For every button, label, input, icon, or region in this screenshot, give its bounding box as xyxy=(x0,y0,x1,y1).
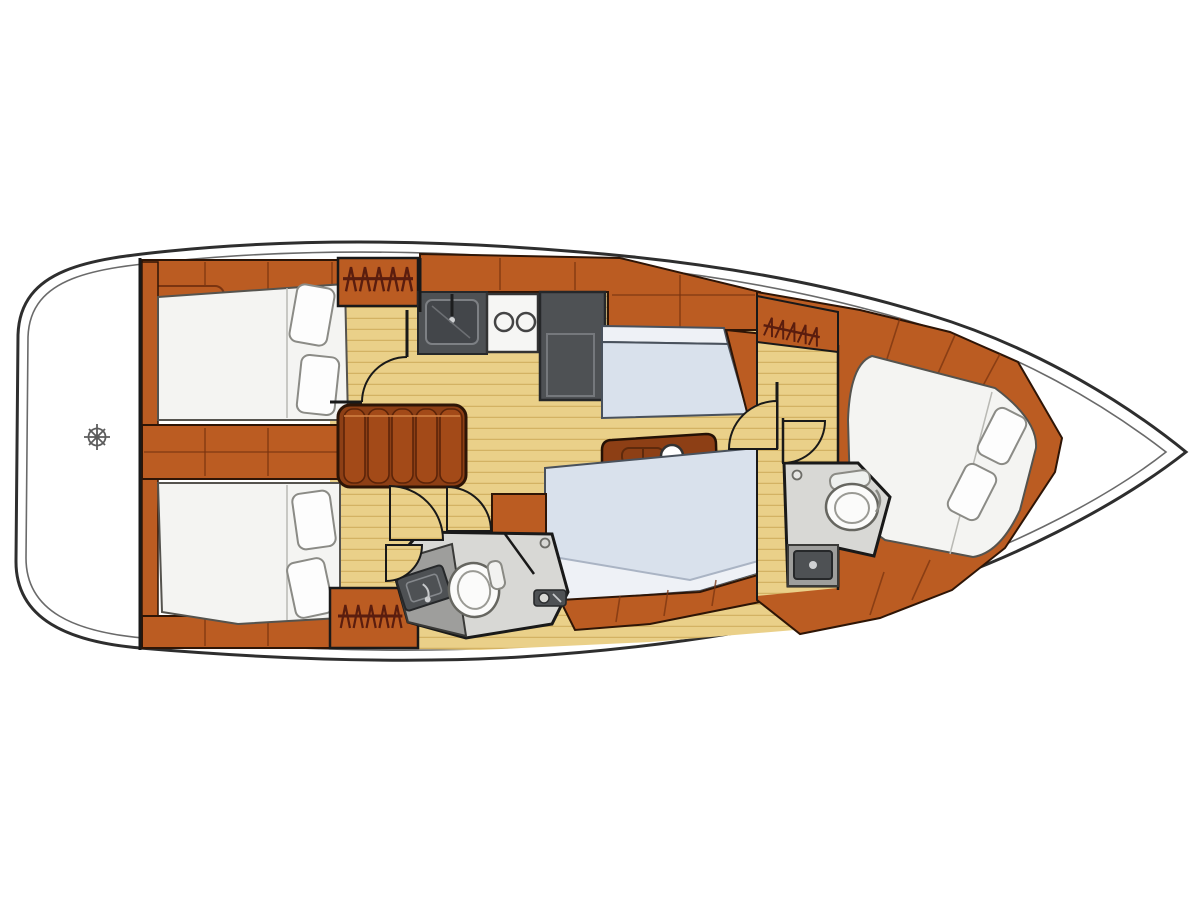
port-settee xyxy=(602,342,748,418)
pillow xyxy=(291,490,336,551)
salon-cabinet xyxy=(492,494,546,534)
refrigerator xyxy=(540,292,605,400)
hanging-locker-aft-port xyxy=(338,258,418,306)
companionway-steps xyxy=(338,405,466,487)
boat-layout-page xyxy=(0,0,1200,900)
drain xyxy=(793,471,802,480)
aft-cabin-starboard xyxy=(142,425,354,648)
pillow xyxy=(296,354,340,416)
boat-layout-svg xyxy=(0,0,1200,900)
shower-mixer-icon xyxy=(534,590,566,606)
